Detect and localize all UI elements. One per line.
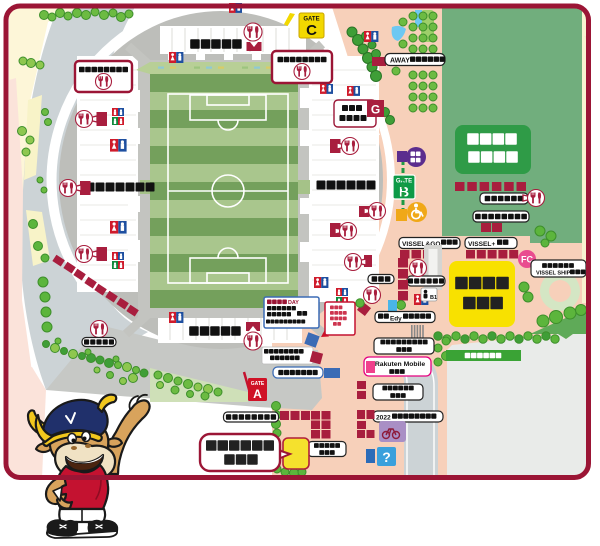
svg-text:Rakuten Mobile: Rakuten Mobile [375,361,425,368]
svg-text:DAY: DAY [288,300,299,306]
svg-text:2022: 2022 [376,415,391,422]
svg-text:VISSEL+: VISSEL+ [468,241,495,248]
svg-text:?: ? [382,449,391,465]
svg-text:AWAY: AWAY [390,58,410,65]
svg-text:A: A [253,387,262,401]
svg-text:VISSEL SHIP: VISSEL SHIP [536,271,571,277]
svg-text:Edy: Edy [390,316,402,323]
svg-text:G: G [371,103,380,117]
svg-text:B1: B1 [430,295,437,301]
svg-text:C: C [306,22,317,39]
